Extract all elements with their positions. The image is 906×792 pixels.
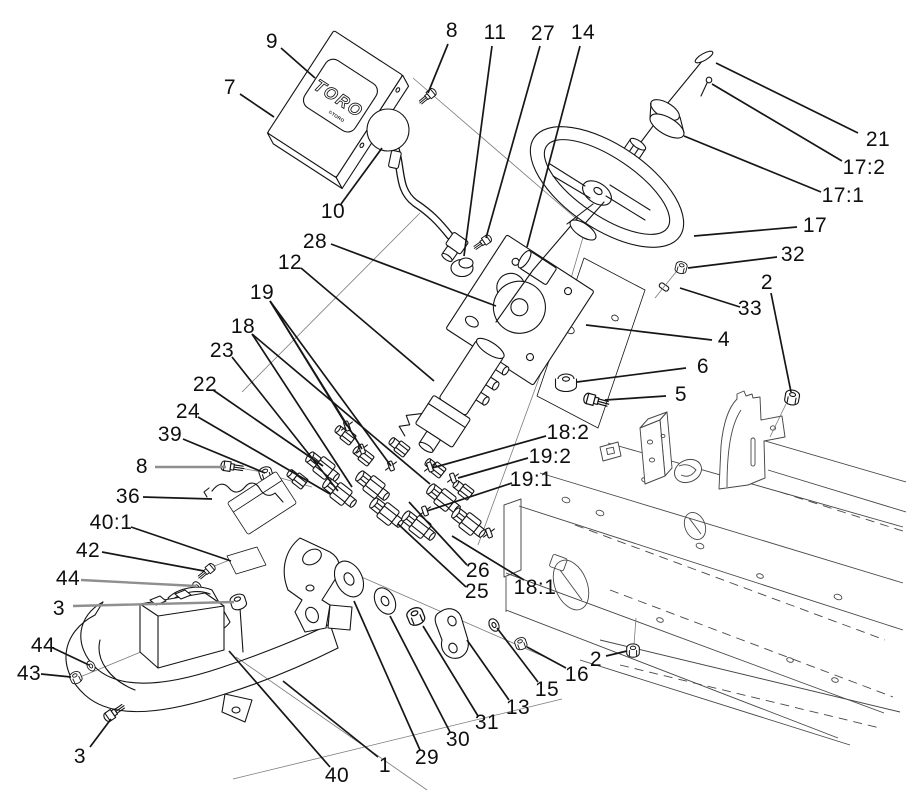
callout-21-7: 21 [866, 128, 890, 152]
leader-line-36-26 [143, 497, 212, 499]
callout-4-14: 4 [718, 328, 730, 352]
washer-30 [370, 584, 400, 618]
callout-17-2-8: 17:2 [843, 156, 886, 180]
leader-line-11-3 [464, 46, 492, 256]
leader-line-43-32 [41, 674, 71, 677]
cap-17-1 [646, 96, 687, 143]
leader-line-15-42 [497, 628, 538, 682]
bracket-tower-right [719, 391, 785, 489]
leader-line-28-17 [331, 244, 496, 306]
callout-42-28: 42 [76, 539, 100, 563]
leader-line-5-16 [605, 396, 666, 400]
callout-31-44: 31 [475, 711, 499, 735]
callout-25-38: 25 [465, 580, 489, 604]
diagram-art: TORO ©TORO [0, 0, 906, 792]
callout-30-45: 30 [446, 728, 470, 752]
callout-3-33: 3 [74, 745, 86, 769]
nut-31 [405, 606, 426, 628]
callout-19-1-36: 19:1 [510, 468, 553, 492]
callout-6-15: 6 [697, 355, 709, 379]
callout-13-43: 13 [506, 696, 530, 720]
bolt-3-lower [102, 702, 127, 723]
leader-line-33-13 [680, 288, 740, 307]
callout-18-1-39: 18:1 [514, 576, 557, 600]
callout-18-2-34: 18:2 [547, 421, 590, 445]
nut-6 [556, 374, 577, 392]
shaft-top-21 [694, 49, 715, 65]
leader-line-42-28 [102, 552, 204, 571]
leader-line-44-29 [81, 580, 196, 586]
callout-3-30: 3 [53, 597, 65, 621]
leader-line-32-11 [688, 257, 777, 268]
leader-line-2-12 [771, 293, 791, 392]
callout-44-31: 44 [31, 634, 55, 658]
callout-17-10: 17 [803, 214, 827, 238]
lever-arm-assembly [284, 538, 528, 658]
bolt-27 [472, 234, 493, 252]
callout-16-40: 16 [565, 663, 589, 687]
callout-22-22: 22 [193, 373, 217, 397]
callout-10-6: 10 [321, 200, 345, 224]
callout-32-11: 32 [781, 243, 805, 267]
frame-tab-bracket [600, 442, 621, 461]
callout-15-42: 15 [535, 678, 559, 702]
callout-5-16: 5 [675, 383, 687, 407]
callout-29-46: 29 [415, 746, 439, 770]
fittings-cluster [285, 419, 497, 544]
callout-12-18: 12 [278, 251, 302, 275]
leader-line-16-40 [527, 647, 566, 668]
shift-lever [367, 109, 469, 265]
callout-40-1-27: 40:1 [90, 511, 133, 535]
callout-19-19: 19 [250, 281, 274, 305]
lever-knob [367, 109, 409, 151]
leader-line-18-20 [252, 334, 430, 484]
nut-2-right [784, 389, 800, 406]
leader-line-17-10 [694, 227, 797, 236]
callout-9-0: 9 [266, 30, 278, 54]
callout-27-4: 27 [531, 22, 555, 46]
nut-2-bottom [627, 618, 640, 657]
leader-line-40-1-27 [131, 527, 231, 561]
callout-2-12: 2 [761, 271, 773, 295]
leader-line-19-19 [270, 301, 362, 449]
leader-line-8-2 [428, 44, 448, 93]
decal-plate-40-1 [227, 547, 266, 574]
callout-23-21: 23 [210, 339, 234, 363]
nut-32 [674, 261, 688, 275]
leader-line-17-2-8 [712, 84, 842, 161]
callout-33-13: 33 [738, 297, 762, 321]
callout-8-25: 8 [136, 455, 148, 479]
bolt-42 [196, 562, 216, 581]
leader-line-9-0 [281, 48, 315, 78]
callout-24-23: 24 [176, 400, 200, 424]
leader-line-7-1 [240, 94, 274, 117]
callout-17-1-9: 17:1 [822, 184, 865, 208]
leader-line-1-47 [283, 681, 378, 757]
callout-39-24: 39 [158, 423, 182, 447]
construction-lines [80, 78, 586, 790]
leader-line-17-1-9 [684, 136, 821, 192]
callout-19-2-35: 19:2 [529, 445, 572, 469]
screw-17-2 [701, 77, 712, 96]
link-13 [435, 609, 468, 659]
frame-gusset [671, 455, 706, 487]
leader-line-13-43 [467, 640, 509, 700]
callout-8-2: 8 [446, 19, 458, 43]
grommet-11 [451, 258, 473, 277]
callout-14-5: 14 [571, 21, 595, 45]
leader-line-12-18 [301, 268, 434, 381]
callout-43-32: 43 [17, 662, 41, 686]
callout-11-3: 11 [484, 21, 507, 45]
callout-1-47: 1 [379, 754, 391, 778]
bracket-tower-left [640, 412, 672, 484]
callout-36-26: 36 [116, 485, 140, 509]
callout-7-1: 7 [224, 76, 236, 100]
callout-18-20: 18 [231, 315, 255, 339]
parts-diagram: TORO ©TORO [0, 0, 906, 792]
leader-line-23-21 [232, 357, 338, 491]
callout-44-29: 44 [56, 567, 80, 591]
callout-2-41: 2 [590, 648, 602, 672]
callout-40-48: 40 [325, 764, 349, 788]
callout-28-17: 28 [303, 230, 327, 254]
leader-line-3-33 [90, 719, 111, 747]
harness-bracket-36 [204, 471, 297, 534]
